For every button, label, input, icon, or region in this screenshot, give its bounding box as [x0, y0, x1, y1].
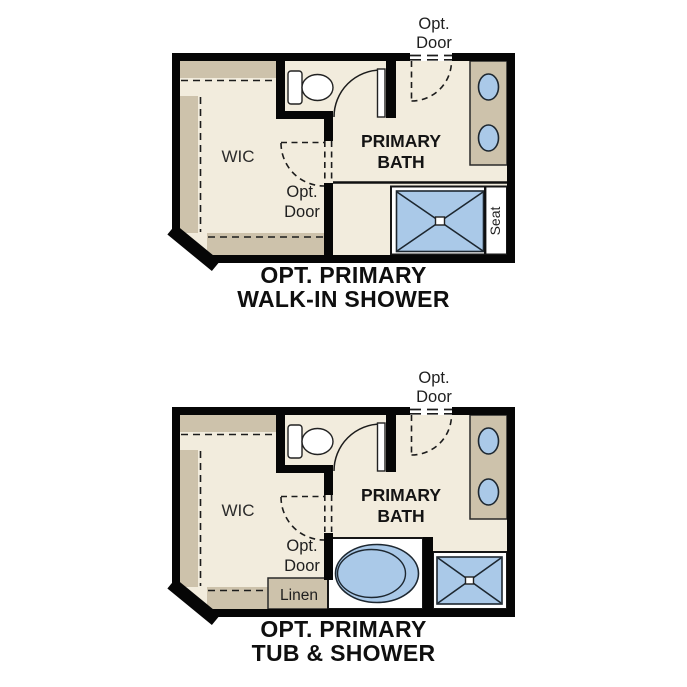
- shower-drain-icon: [466, 577, 474, 584]
- shower-drain-icon: [436, 217, 445, 225]
- room-label-primary-bath: PRIMARY: [361, 131, 441, 151]
- opt-door-top-label: Opt.: [418, 369, 449, 387]
- plan-walk-in-shower: Opt. Door PRIMARY BATH WIC Opt. Door Sea…: [172, 15, 516, 266]
- sink-icon: [479, 74, 499, 100]
- plan-title-line: WALK-IN SHOWER: [0, 287, 687, 311]
- opt-door-wic-label: Opt.: [286, 183, 317, 201]
- plan-title-line: OPT. PRIMARY: [0, 617, 687, 641]
- opt-door-top-label: Opt.: [418, 15, 449, 33]
- toilet-icon: [288, 71, 333, 104]
- sink-icon: [479, 428, 499, 454]
- opt-door-top-label: Door: [416, 388, 452, 406]
- linen-label: Linen: [280, 587, 318, 604]
- toilet-icon: [288, 425, 333, 458]
- floorplan-sheet: Opt. Door PRIMARY BATH WIC Opt. Door Sea…: [0, 0, 687, 687]
- room-label-primary-bath: BATH: [377, 506, 424, 526]
- plan-title-tub-shower: OPT. PRIMARY TUB & SHOWER: [0, 617, 687, 665]
- opt-door-wic-label: Opt.: [286, 537, 317, 555]
- room-label-wic: WIC: [221, 501, 254, 520]
- sink-icon: [479, 479, 499, 505]
- sink-icon: [479, 125, 499, 151]
- room-label-primary-bath: BATH: [377, 152, 424, 172]
- room-label-wic: WIC: [221, 147, 254, 166]
- bathtub-icon: [328, 538, 423, 609]
- plan-tub-shower: Opt. Door PRIMARY BATH WIC Opt. Door Lin…: [172, 369, 516, 620]
- plan-title-line: OPT. PRIMARY: [0, 263, 687, 287]
- opt-door-wic-label: Door: [284, 557, 320, 575]
- opt-door-wic-label: Door: [284, 203, 320, 221]
- plan-title-line: TUB & SHOWER: [0, 641, 687, 665]
- room-label-primary-bath: PRIMARY: [361, 485, 441, 505]
- seat-label: Seat: [487, 206, 503, 235]
- plan-title-walk-in-shower: OPT. PRIMARY WALK-IN SHOWER: [0, 263, 687, 311]
- floorplan-canvas: Opt. Door PRIMARY BATH WIC Opt. Door Sea…: [0, 0, 687, 687]
- shower: [433, 552, 507, 609]
- opt-door-top-label: Door: [416, 34, 452, 52]
